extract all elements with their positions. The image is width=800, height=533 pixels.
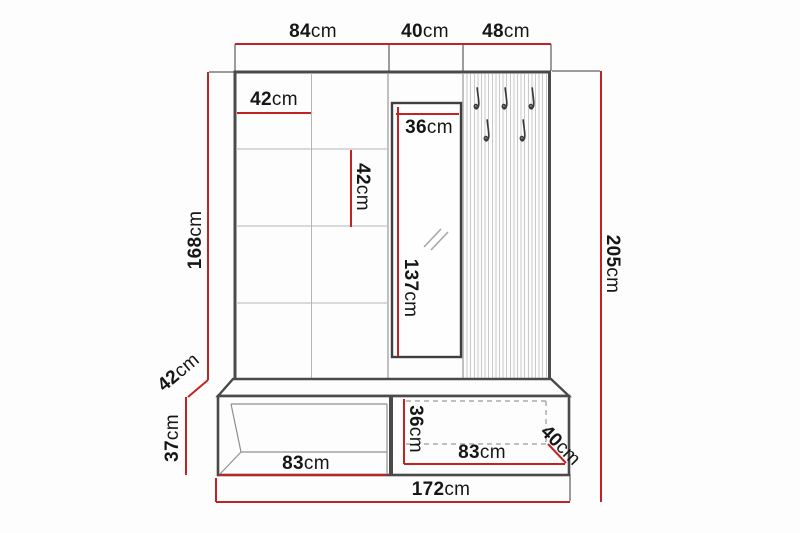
dimension-label-drawer-height: 36cm <box>404 405 426 453</box>
dimension-label-square-width: 42cm <box>250 89 298 111</box>
dimension-label-top-left-width: 84cm <box>289 21 337 43</box>
dimension-label-mirror-width: 36cm <box>405 117 453 139</box>
dimension-label-mirror-height: 137cm <box>399 259 421 318</box>
dimension-label-panel-height: 168cm <box>185 211 207 270</box>
coat-hook-icon <box>484 120 488 142</box>
coat-hook-icon <box>502 88 506 110</box>
dimension-label-total-width: 172cm <box>412 479 471 501</box>
mirror <box>392 103 461 357</box>
dimension-label-bench-height: 37cm <box>162 414 184 462</box>
upholstered-grid-lines <box>236 73 387 380</box>
dimension-label-drawer-width: 83cm <box>458 442 506 464</box>
coat-hook-icon <box>529 88 533 110</box>
dimension-label-total-height: 205cm <box>601 235 623 294</box>
furniture-dimension-diagram: 84cm 40cm 48cm 42cm 42cm 36cm 137cm 168c… <box>0 0 800 533</box>
coat-hooks <box>474 88 533 142</box>
coat-hook-icon <box>474 88 478 110</box>
dimension-label-top-middle-width: 40cm <box>401 21 449 43</box>
bench-top-surface <box>218 379 569 396</box>
dimension-label-square-height: 42cm <box>351 163 373 211</box>
dimension-label-open-shelf-width: 83cm <box>282 453 330 475</box>
coat-hook-icon <box>520 120 524 142</box>
dimension-label-top-right-width: 48cm <box>482 21 530 43</box>
